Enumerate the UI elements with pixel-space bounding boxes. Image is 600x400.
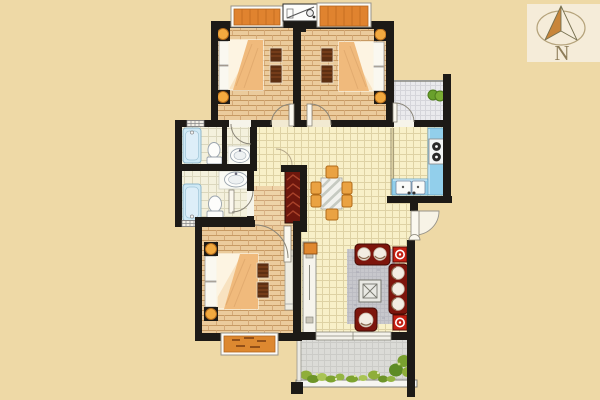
svg-text:N: N (554, 41, 569, 65)
